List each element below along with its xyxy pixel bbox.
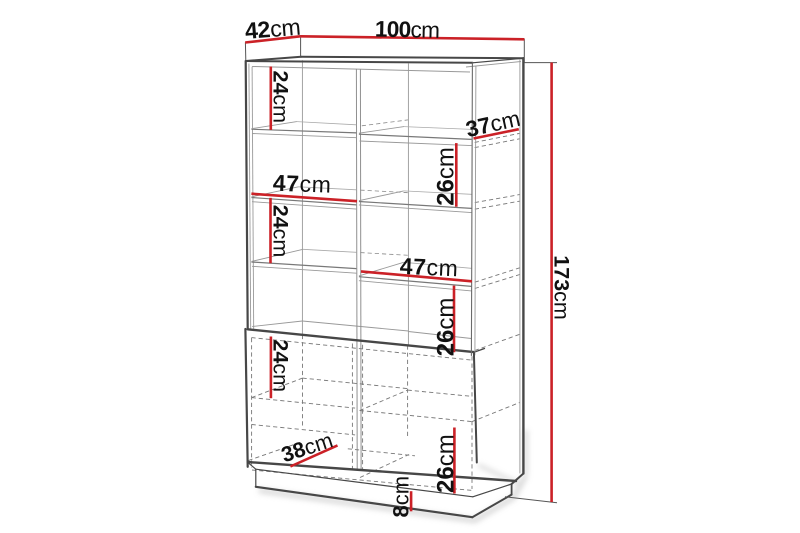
- svg-text:47cm: 47cm: [399, 253, 459, 282]
- svg-text:24cm: 24cm: [268, 205, 292, 258]
- svg-text:24cm: 24cm: [268, 339, 292, 392]
- svg-text:26cm: 26cm: [433, 147, 460, 206]
- svg-text:26cm: 26cm: [432, 434, 459, 493]
- svg-text:26cm: 26cm: [432, 298, 459, 357]
- svg-text:8cm: 8cm: [388, 476, 413, 518]
- svg-text:173cm: 173cm: [550, 255, 574, 320]
- svg-text:47cm: 47cm: [272, 170, 332, 198]
- svg-text:24cm: 24cm: [268, 71, 292, 124]
- svg-text:42cm: 42cm: [244, 14, 301, 44]
- svg-text:100cm: 100cm: [375, 17, 440, 43]
